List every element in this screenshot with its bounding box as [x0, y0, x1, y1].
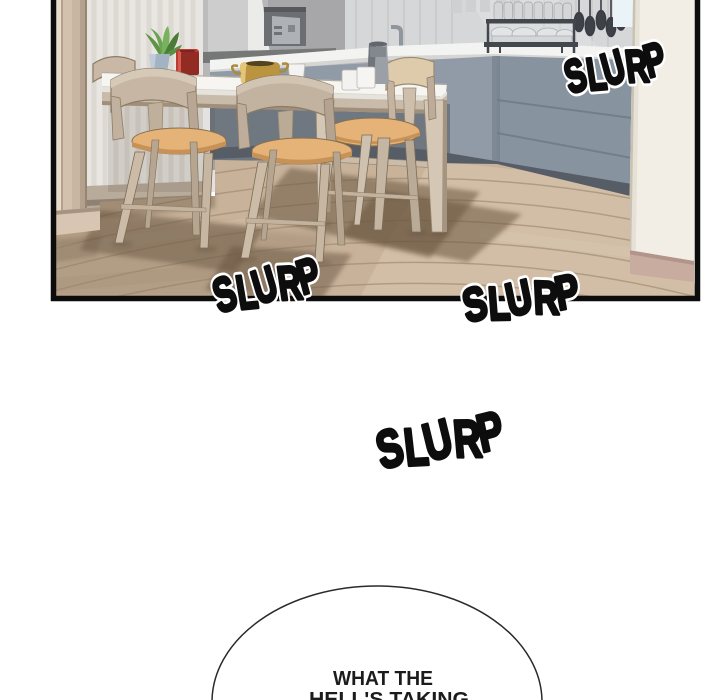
svg-text:HELL'S TAKING: HELL'S TAKING — [309, 689, 469, 700]
svg-text:WHAT THE: WHAT THE — [333, 668, 433, 690]
